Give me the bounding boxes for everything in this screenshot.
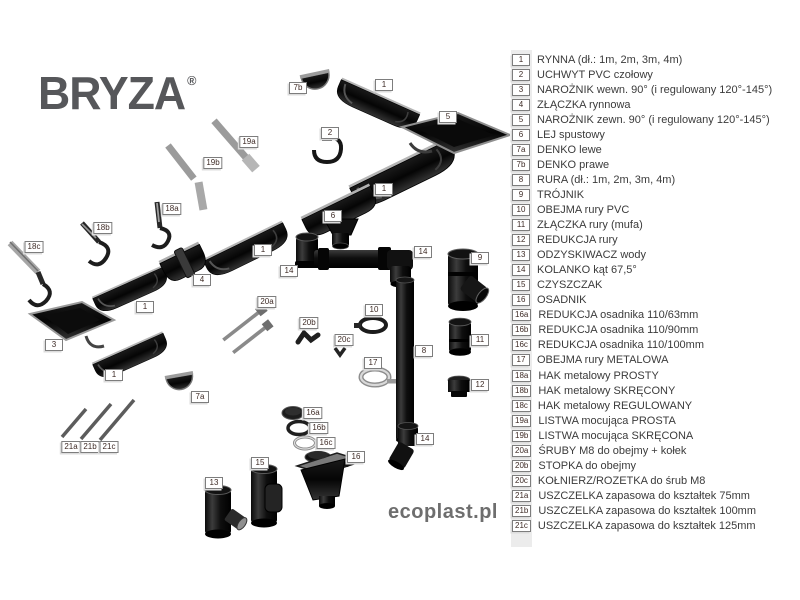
legend-item-label: OBEJMA rury PVC xyxy=(537,204,629,216)
legend-item-label: RYNNA (dł.: 1m, 2m, 3m, 4m) xyxy=(537,54,682,66)
part-pipe-coupler xyxy=(449,318,471,356)
legend-item-number: 14 xyxy=(512,264,530,276)
legend-item-number: 15 xyxy=(512,279,530,291)
legend-item-13: 13 ODZYSKIWACZ wody xyxy=(512,248,798,263)
legend-item-5: 5 NAROŻNIK zewn. 90° (i regulowany 120°-… xyxy=(512,112,798,127)
legend-item-label: ODZYSKIWACZ wody xyxy=(537,249,646,261)
legend-item-label: NAROŻNIK zewn. 90° (i regulowany 120°-14… xyxy=(537,114,770,126)
part-cleanout xyxy=(251,465,282,528)
legend-item-17: 17 OBEJMA rury METALOWA xyxy=(512,353,798,368)
legend-item-18c: 18c HAK metalowy REGULOWANY xyxy=(512,398,798,413)
part-screws xyxy=(220,304,277,356)
legend-item-19b: 19b LISTWA mocująca SKRĘCONA xyxy=(512,428,798,443)
legend-item-label: LEJ spustowy xyxy=(537,129,605,141)
legend: 1 RYNNA (dł.: 1m, 2m, 3m, 4m) 2 UCHWYT P… xyxy=(512,52,798,534)
legend-item-label: STOPKA do obejmy xyxy=(538,460,636,472)
legend-item-number: 21c xyxy=(512,520,531,532)
part-gaskets xyxy=(62,400,134,440)
legend-item-number: 10 xyxy=(512,204,530,216)
legend-item-number: 19a xyxy=(512,415,531,427)
legend-item-label: LISTWA mocująca SKRĘCONA xyxy=(538,430,693,442)
part-marker-21b: 21b xyxy=(80,441,99,453)
legend-item-number: 21a xyxy=(512,490,531,502)
legend-item-number: 19b xyxy=(512,430,531,442)
part-marker-16b: 16b xyxy=(309,422,328,434)
legend-item-label: HAK metalowy SKRĘCONY xyxy=(538,385,675,397)
legend-item-number: 6 xyxy=(512,129,530,141)
legend-item-label: OSADNIK xyxy=(537,294,587,306)
part-marker-13: 13 xyxy=(205,477,223,489)
legend-item-label: CZYSZCZAK xyxy=(537,279,602,291)
legend-item-21c: 21c USZCZELKA zapasowa do kształtek 125m… xyxy=(512,518,798,533)
legend-item-label: UCHWYT PVC czołowy xyxy=(537,69,653,81)
legend-item-number: 20b xyxy=(512,460,531,472)
legend-item-18a: 18a HAK metalowy PROSTY xyxy=(512,368,798,383)
part-pipe-reduction xyxy=(448,376,470,397)
legend-item-label: ZŁĄCZKA rury (mufa) xyxy=(537,219,643,231)
part-marker-19b: 19b xyxy=(203,157,222,169)
part-offset-pipe xyxy=(295,233,413,288)
legend-item-label: REDUKCJA osadnika 110/90mm xyxy=(538,324,698,336)
part-marker-16c: 16c xyxy=(317,437,336,449)
legend-item-9: 9 TRÓJNIK xyxy=(512,187,798,202)
legend-item-7a: 7a DENKO lewe xyxy=(512,142,798,157)
legend-item-label: HAK metalowy REGULOWANY xyxy=(538,400,692,412)
legend-item-number: 3 xyxy=(512,84,530,96)
legend-item-number: 17 xyxy=(512,354,530,366)
part-marker-17: 17 xyxy=(364,357,382,369)
legend-item-1: 1 RYNNA (dł.: 1m, 2m, 3m, 4m) xyxy=(512,52,798,67)
legend-item-label: DENKO prawe xyxy=(537,159,609,171)
part-marker-15: 15 xyxy=(251,457,269,469)
part-marker-11: 11 xyxy=(471,334,489,346)
part-marker-18b: 18b xyxy=(93,222,112,234)
legend-item-16b: 16b REDUKCJA osadnika 110/90mm xyxy=(512,323,798,338)
part-marker-14: 14 xyxy=(280,265,298,277)
part-gutter xyxy=(92,331,171,381)
part-marker-9: 9 xyxy=(471,252,489,264)
part-marker-7b: 7b xyxy=(289,82,307,94)
legend-item-6: 6 LEJ spustowy xyxy=(512,127,798,142)
legend-item-label: ŚRUBY M8 do obejmy + kołek xyxy=(538,445,686,457)
part-metal-clamp xyxy=(361,369,396,385)
part-marker-1: 1 xyxy=(375,183,393,195)
legend-item-20a: 20a ŚRUBY M8 do obejmy + kołek xyxy=(512,443,798,458)
legend-item-label: NAROŻNIK wewn. 90° (i regulowany 120°-14… xyxy=(537,84,772,96)
part-gutter xyxy=(92,265,171,315)
legend-item-number: 18a xyxy=(512,370,531,382)
legend-item-label: REDUKCJA rury xyxy=(537,234,618,246)
part-marker-1: 1 xyxy=(105,369,123,381)
legend-item-number: 20a xyxy=(512,445,531,457)
legend-item-number: 16 xyxy=(512,294,530,306)
part-marker-21a: 21a xyxy=(61,441,80,453)
part-marker-19a: 19a xyxy=(239,136,258,148)
legend-item-16c: 16c REDUKCJA osadnika 110/100mm xyxy=(512,338,798,353)
legend-item-11: 11 ZŁĄCZKA rury (mufa) xyxy=(512,218,798,233)
legend-item-7b: 7b DENKO prawe xyxy=(512,157,798,172)
legend-item-number: 18c xyxy=(512,400,531,412)
legend-item-19a: 19a LISTWA mocująca PROSTA xyxy=(512,413,798,428)
legend-item-16a: 16a REDUKCJA osadnika 110/63mm xyxy=(512,308,798,323)
legend-item-label: USZCZELKA zapasowa do kształtek 75mm xyxy=(538,490,750,502)
bryza-parts-catalog: BRYZA® xyxy=(0,0,800,600)
legend-rows: 1 RYNNA (dł.: 1m, 2m, 3m, 4m) 2 UCHWYT P… xyxy=(512,52,798,534)
legend-item-number: 16a xyxy=(512,309,531,321)
part-marker-20c: 20c xyxy=(335,334,354,346)
legend-item-number: 5 xyxy=(512,114,530,126)
legend-item-label: LISTWA mocująca PROSTA xyxy=(538,415,676,427)
legend-item-label: USZCZELKA zapasowa do kształtek 125mm xyxy=(538,520,756,532)
legend-item-20c: 20c KOŁNIERZ/ROZETKA do śrub M8 xyxy=(512,473,798,488)
legend-item-14: 14 KOLANKO kąt 67,5° xyxy=(512,263,798,278)
part-marker-1: 1 xyxy=(136,301,154,313)
part-mounting-strip-twisted xyxy=(165,143,207,210)
part-clamp-foot xyxy=(298,333,318,342)
part-trap-reduction-63 xyxy=(282,407,304,420)
legend-item-number: 16b xyxy=(512,324,531,336)
legend-item-number: 7b xyxy=(512,159,530,171)
part-gutter xyxy=(203,221,292,280)
part-pvc-bracket xyxy=(314,135,341,162)
part-marker-14: 14 xyxy=(416,433,434,445)
legend-item-16: 16 OSADNIK xyxy=(512,293,798,308)
part-marker-3: 3 xyxy=(45,339,63,351)
legend-item-18b: 18b HAK metalowy SKRĘCONY xyxy=(512,383,798,398)
part-pvc-clamp xyxy=(354,318,386,332)
legend-item-10: 10 OBEJMA rury PVC xyxy=(512,202,798,217)
part-trap-reduction-100 xyxy=(295,437,316,449)
legend-item-number: 12 xyxy=(512,234,530,246)
legend-item-number: 2 xyxy=(512,69,530,81)
legend-item-12: 12 REDUKCJA rury xyxy=(512,233,798,248)
legend-item-label: TRÓJNIK xyxy=(537,189,584,201)
legend-item-number: 13 xyxy=(512,249,530,261)
legend-item-8: 8 RURA (dł.: 1m, 2m, 3m, 4m) xyxy=(512,172,798,187)
legend-item-number: 21b xyxy=(512,505,531,517)
part-downpipe xyxy=(396,277,414,443)
legend-item-number: 20c xyxy=(512,475,531,487)
legend-item-label: REDUKCJA osadnika 110/100mm xyxy=(538,339,704,351)
part-marker-1: 1 xyxy=(375,79,393,91)
part-marker-20a: 20a xyxy=(257,296,276,308)
legend-item-number: 16c xyxy=(512,339,531,351)
part-marker-12: 12 xyxy=(471,379,489,391)
part-marker-16a: 16a xyxy=(303,407,322,419)
part-marker-16: 16 xyxy=(347,451,365,463)
legend-item-label: DENKO lewe xyxy=(537,144,602,156)
legend-item-number: 8 xyxy=(512,174,530,186)
legend-item-number: 1 xyxy=(512,54,530,66)
legend-item-label: OBEJMA rury METALOWA xyxy=(537,354,668,366)
legend-item-number: 7a xyxy=(512,144,530,156)
legend-item-number: 9 xyxy=(512,189,530,201)
part-marker-8: 8 xyxy=(415,345,433,357)
part-marker-4: 4 xyxy=(193,274,211,286)
legend-item-number: 18b xyxy=(512,385,531,397)
part-water-collector xyxy=(205,486,249,539)
legend-item-label: HAK metalowy PROSTY xyxy=(538,370,658,382)
legend-item-15: 15 CZYSZCZAK xyxy=(512,278,798,293)
part-elbow xyxy=(387,423,418,473)
legend-item-number: 4 xyxy=(512,99,530,111)
legend-item-4: 4 ZŁĄCZKA rynnowa xyxy=(512,97,798,112)
legend-item-label: ZŁĄCZKA rynnowa xyxy=(537,99,631,111)
legend-item-21b: 21b USZCZELKA zapasowa do kształtek 100m… xyxy=(512,503,798,518)
part-marker-14: 14 xyxy=(414,246,432,258)
part-marker-1: 1 xyxy=(254,244,272,256)
legend-item-label: KOŁNIERZ/ROZETKA do śrub M8 xyxy=(538,475,706,487)
part-end-cap-left xyxy=(165,371,196,392)
part-marker-2: 2 xyxy=(321,127,339,139)
part-rosette xyxy=(335,348,345,355)
legend-item-number: 11 xyxy=(512,219,530,231)
part-trap-reduction-90 xyxy=(288,422,310,435)
part-marker-21c: 21c xyxy=(100,441,119,453)
legend-item-20b: 20b STOPKA do obejmy xyxy=(512,458,798,473)
legend-item-label: KOLANKO kąt 67,5° xyxy=(537,264,637,276)
legend-item-21a: 21a USZCZELKA zapasowa do kształtek 75mm xyxy=(512,488,798,503)
part-marker-18a: 18a xyxy=(162,203,181,215)
part-marker-7a: 7a xyxy=(191,391,209,403)
part-marker-5: 5 xyxy=(439,111,457,123)
part-marker-6: 6 xyxy=(324,210,342,222)
legend-item-label: USZCZELKA zapasowa do kształtek 100mm xyxy=(538,505,756,517)
legend-item-label: REDUKCJA osadnika 110/63mm xyxy=(538,309,698,321)
part-marker-18c: 18c xyxy=(25,241,44,253)
legend-item-label: RURA (dł.: 1m, 2m, 3m, 4m) xyxy=(537,174,675,186)
legend-item-3: 3 NAROŻNIK wewn. 90° (i regulowany 120°-… xyxy=(512,82,798,97)
part-marker-10: 10 xyxy=(365,304,383,316)
website-text: ecoplast.pl xyxy=(388,501,498,524)
legend-item-2: 2 UCHWYT PVC czołowy xyxy=(512,67,798,82)
part-marker-20b: 20b xyxy=(299,317,318,329)
